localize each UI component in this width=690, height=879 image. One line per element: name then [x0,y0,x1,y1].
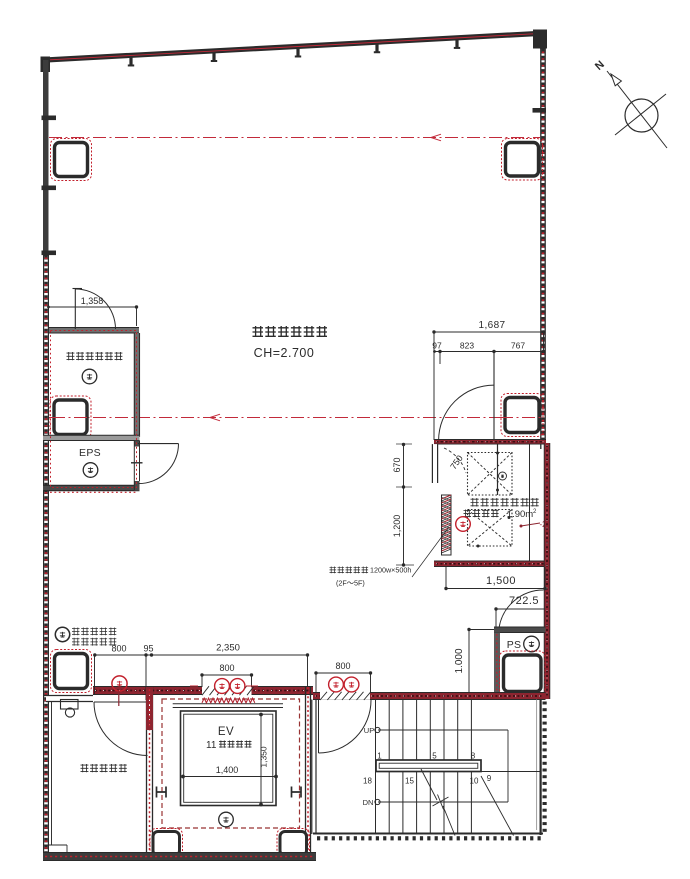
svg-text:2,350: 2,350 [216,643,240,654]
svg-text:670: 670 [392,457,402,472]
svg-text:DN: DN [363,798,374,807]
svg-text:9: 9 [487,774,492,783]
svg-text:5: 5 [432,752,437,761]
svg-text:15: 15 [405,777,414,786]
svg-text:823: 823 [460,341,474,351]
svg-text:1,358: 1,358 [81,296,104,306]
svg-text:1.000: 1.000 [454,648,465,673]
svg-text:97: 97 [432,341,442,351]
svg-text:10: 10 [470,777,479,786]
svg-text:PS: PS [507,639,522,651]
svg-text:CH=2.700: CH=2.700 [254,346,315,360]
svg-text:800: 800 [335,661,350,671]
svg-text:UP: UP [364,726,374,735]
svg-text:1,687: 1,687 [478,320,505,331]
svg-text:8: 8 [471,752,476,761]
svg-text:1,500: 1,500 [486,575,516,587]
svg-text:(2F～5F): (2F～5F) [336,579,365,588]
svg-text:18: 18 [363,777,372,786]
svg-text:767: 767 [511,341,525,351]
svg-text:1,350: 1,350 [259,746,269,768]
svg-text:800: 800 [219,663,234,673]
svg-text:1,200: 1,200 [392,515,402,538]
svg-text:EV: EV [218,726,234,738]
svg-text:1200w×500h: 1200w×500h [370,566,411,575]
svg-text:800: 800 [111,644,126,654]
svg-text:95: 95 [143,644,153,654]
svg-text:1,400: 1,400 [216,765,239,775]
svg-text:1: 1 [377,752,382,761]
svg-text:EPS: EPS [79,447,101,459]
svg-text:11: 11 [206,740,217,751]
